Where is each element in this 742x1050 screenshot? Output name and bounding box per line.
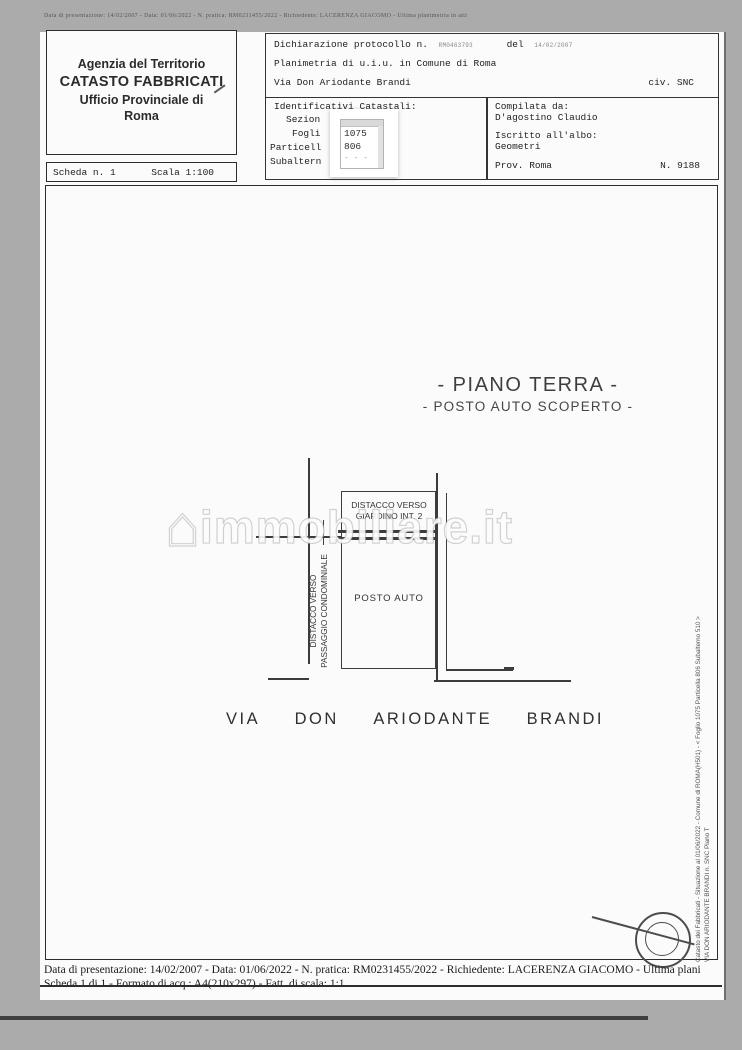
del-label: del: [507, 39, 524, 50]
footer-strike-line: [40, 985, 722, 987]
planimetria-line: Planimetria di u.i.u. in Comune di Roma: [274, 58, 496, 69]
registration-number: N. 9188: [660, 160, 700, 171]
plan-wall-line-lower: [338, 537, 437, 540]
margin-reference-line1: Catasto dei Fabbricati - Situazione al 0…: [694, 548, 703, 962]
civic-number: civ. SNC: [648, 77, 694, 88]
giardino-label-line1: DISTACCO VERSO: [343, 500, 435, 511]
passaggio-label-line2: PASSAGGIO CONDOMINIALE: [320, 546, 331, 676]
foglio-value: 1075: [344, 128, 367, 139]
agency-header-box: Agenzia del Territorio CATASTO FABBRICAT…: [46, 30, 237, 155]
plan-line-right-boundary-1: [436, 473, 438, 681]
subalterno-value: - - -: [344, 154, 368, 163]
footer-format-line: Scheda 1 di 1 - Formato di acq.: A4(210x…: [44, 978, 742, 990]
plan-line-mid-horizontal: [256, 536, 342, 538]
compiler-box: Compilata da: D'agostino Claudio Iscritt…: [486, 97, 719, 180]
floor-title: - PIANO TERRA -: [378, 374, 678, 397]
giardino-label-line2: GIARDINO INT. 2: [343, 511, 435, 522]
compiler-title: Compilata da:: [495, 101, 569, 112]
agency-line: Agenzia del Territorio: [47, 57, 236, 71]
scheda-scala-box: Scheda n. 1 Scala 1:100: [46, 162, 237, 182]
street-line: Via Don Ariodante Brandi: [274, 77, 411, 88]
city-line: Roma: [47, 109, 236, 123]
plan-line-bottom-left: [268, 678, 309, 680]
street-word-don: DON: [295, 710, 339, 729]
street-word-via: VIA: [226, 710, 260, 729]
margin-reference-line2: VIA DON ARIODANTE BRANDI n. SNC Piano T: [703, 548, 712, 962]
street-word-ariodante: ARIODANTE: [373, 710, 492, 729]
declaration-box: Dichiarazione protocollo n. RM0463793 de…: [265, 33, 719, 98]
passaggio-label-line1: DISTACCO VERSO: [309, 546, 320, 676]
protocol-label: Dichiarazione protocollo n.: [274, 39, 428, 50]
giardino-distance-label: DISTACCO VERSO GIARDINO INT. 2: [343, 500, 435, 521]
footer-metadata-line: Data di presentazione: 14/02/2007 - Data…: [44, 964, 742, 976]
particella-label: Particell: [270, 142, 321, 153]
listbox-scrollbar: [378, 126, 383, 169]
street-word-brandi: BRANDI: [527, 710, 604, 729]
listbox-scroll-strip: [341, 120, 383, 127]
floor-subtitle: - POSTO AUTO SCOPERTO -: [378, 399, 678, 414]
values-listbox: 1075 806 - - -: [340, 119, 384, 169]
compiler-name: D'agostino Claudio: [495, 112, 598, 123]
plan-line-bottom-right-tick: [504, 667, 514, 670]
margin-reference-text: Catasto dei Fabbricati - Situazione al 0…: [694, 548, 713, 962]
sezione-label: Sezion: [286, 114, 320, 125]
province-label: Prov. Roma: [495, 160, 552, 171]
scanned-cadastral-document: { "page": { "top_strip": "Data di presen…: [0, 0, 742, 1050]
protocol-row: Dichiarazione protocollo n. RM0463793 de…: [274, 39, 572, 50]
albo-label: Iscritto all'albo:: [495, 130, 598, 141]
scan-bottom-edge-line: [0, 1016, 648, 1020]
particella-value: 806: [344, 141, 361, 152]
foglio-label: Fogli: [292, 128, 321, 139]
scheda-number: Scheda n. 1: [53, 167, 116, 178]
floor-plan-canvas: - PIANO TERRA - - POSTO AUTO SCOPERTO - …: [45, 185, 718, 960]
catasto-title: CATASTO FABBRICATI: [47, 74, 236, 90]
plan-line-bottom-right-1: [446, 669, 513, 671]
scale-value: Scala 1:100: [151, 167, 214, 178]
plan-line-right-boundary-2: [446, 493, 447, 671]
subalterno-label: Subaltern: [270, 156, 321, 167]
plan-wall-line-upper: [338, 530, 437, 533]
parking-spot-label: POSTO AUTO: [348, 593, 430, 605]
values-overlay-panel: 1075 806 - - -: [330, 109, 398, 177]
protocol-date: 14/02/2007: [534, 42, 572, 49]
plan-line-tick-vertical: [323, 520, 324, 545]
street-name: VIA DON ARIODANTE BRANDI: [226, 710, 604, 729]
passaggio-distance-label: DISTACCO VERSO PASSAGGIO CONDOMINIALE: [309, 546, 333, 676]
office-line: Ufficio Provinciale di: [47, 93, 236, 107]
albo-value: Geometri: [495, 141, 541, 152]
scan-header-strip: Data di presentazione: 14/02/2007 - Data…: [44, 13, 569, 23]
plan-line-bottom-right-2: [434, 680, 571, 682]
protocol-number: RM0463793: [439, 42, 473, 49]
